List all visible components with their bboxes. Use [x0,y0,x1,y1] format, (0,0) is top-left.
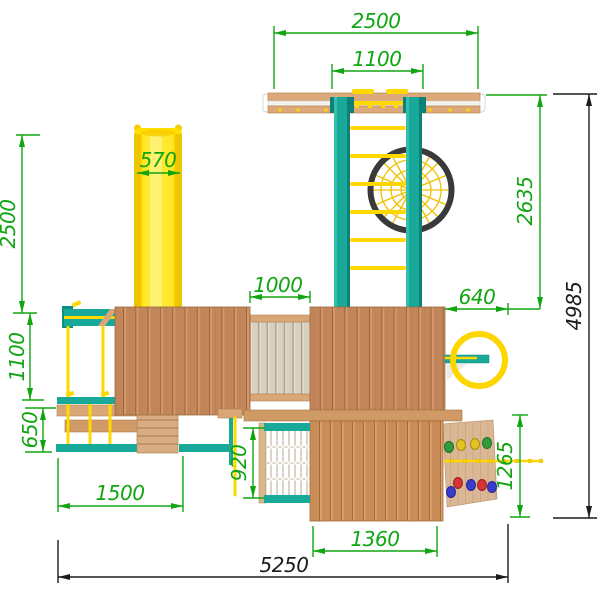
dim-total-width: 5250 [58,524,508,583]
dim-label-total-height: 4985 [562,282,586,331]
dim-slide-width: 570 [137,148,180,173]
dim-label-bridge-length: 1000 [254,273,303,297]
dim-left-lower-height: 650 [18,408,56,452]
dim-label-net-height: 920 [227,445,251,482]
dim-bridge-length: 1000 [250,273,310,303]
dim-frame-height: 2635 [486,95,547,309]
ground-bar [179,444,232,452]
dim-wall-height: 1265 [493,415,530,517]
dim-lower-platform-width: 1360 [313,526,437,557]
suspension-bridge [246,315,314,401]
dim-label-lower-platform-width: 1360 [351,527,400,551]
dim-left-height: 2500 [0,135,40,313]
playground-drawing: 2500 1100 570 2500 1100 650 [0,0,600,600]
beam-rail-top [268,93,480,101]
dim-label-top-width: 2500 [352,9,401,33]
gym-ring-module [445,334,505,386]
dim-label-total-width: 5250 [260,553,309,577]
dim-label-left-upper-height: 1100 [5,333,29,382]
dim-label-left-lower-height: 650 [18,412,42,449]
tower-left-platform [115,307,250,415]
ground-bar [56,444,138,452]
ladder-rungs [352,128,404,268]
dim-label-frame-height: 2635 [513,177,537,226]
trapeze-handle [352,89,374,94]
dim-top-inner-width: 1100 [332,47,423,89]
stairs [137,412,178,453]
trapeze-handle [386,89,408,94]
dim-label-frame-offset: 640 [459,285,496,309]
dim-swing-span: 1500 [58,456,183,512]
dim-label-left-height: 2500 [0,200,20,249]
beam-rail-bottom [268,106,480,113]
deck-edge-strip [244,410,462,421]
dim-total-height: 4985 [553,94,597,518]
dim-label-slide-width: 570 [140,148,177,172]
tower-right-platform [310,307,445,410]
dim-frame-offset: 640 [445,285,540,315]
dim-label-top-inner-width: 1100 [353,47,402,71]
dim-label-wall-height: 1265 [493,442,517,491]
dim-label-swing-span: 1500 [96,481,145,505]
dim-left-upper-height: 1100 [5,313,44,400]
rope-net-climber [259,423,310,503]
lower-platform [310,421,443,521]
drawing-canvas: 2500 1100 570 2500 1100 650 [0,0,600,600]
